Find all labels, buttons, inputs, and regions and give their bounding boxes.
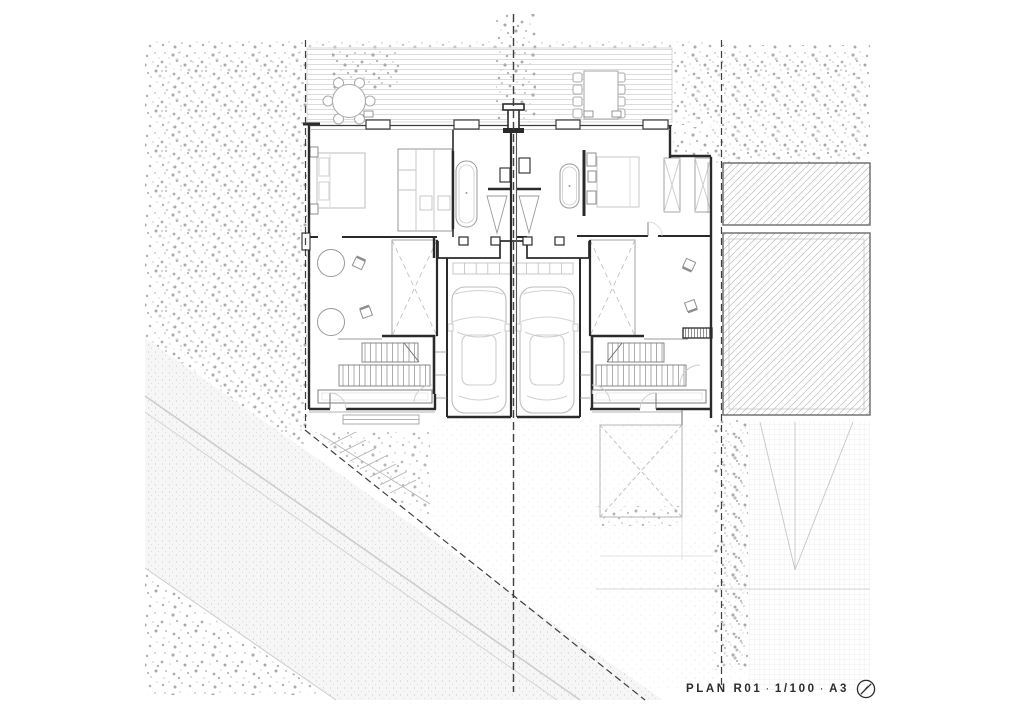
plan-name: PLAN R01 — [686, 683, 762, 695]
plan-scale: 1/100 — [775, 683, 817, 695]
west-bedroom-furniture — [310, 147, 365, 214]
neighbor-building-strip — [723, 163, 870, 225]
hedge-east-boundary-dense — [720, 427, 746, 667]
title-separator: · — [820, 683, 826, 695]
house-west-unit — [302, 124, 511, 424]
east-doormat — [683, 328, 712, 338]
plan-title: PLAN R01·1/100·A3 — [686, 683, 849, 695]
east-garage-car — [516, 287, 578, 413]
west-exterior-steps — [343, 415, 419, 424]
deck-terrace — [307, 48, 672, 124]
west-bathtub — [456, 161, 477, 227]
architectural-plan-sheet: PLAN R01·1/100·A3 — [0, 0, 1024, 724]
east-entry-steps — [515, 263, 573, 274]
paper-size: A3 — [829, 683, 849, 695]
west-entry-steps — [453, 263, 511, 274]
title-separator: · — [765, 683, 771, 695]
gridded-paving — [748, 420, 870, 690]
hedge-east-strip — [700, 150, 870, 163]
title-block: PLAN R01·1/100·A3 — [686, 679, 876, 699]
neighbor-buildings — [723, 163, 870, 415]
west-garage-car — [448, 287, 510, 413]
east-bathtub — [560, 164, 579, 208]
planting-under-canopy — [598, 506, 682, 526]
east-notch-planter — [673, 127, 711, 156]
neighbor-building-main — [723, 233, 870, 415]
house-east-unit — [511, 125, 712, 425]
west-wardrobe — [398, 149, 453, 231]
floor-plan-drawing — [0, 0, 1024, 724]
north-arrow-icon — [856, 679, 876, 699]
